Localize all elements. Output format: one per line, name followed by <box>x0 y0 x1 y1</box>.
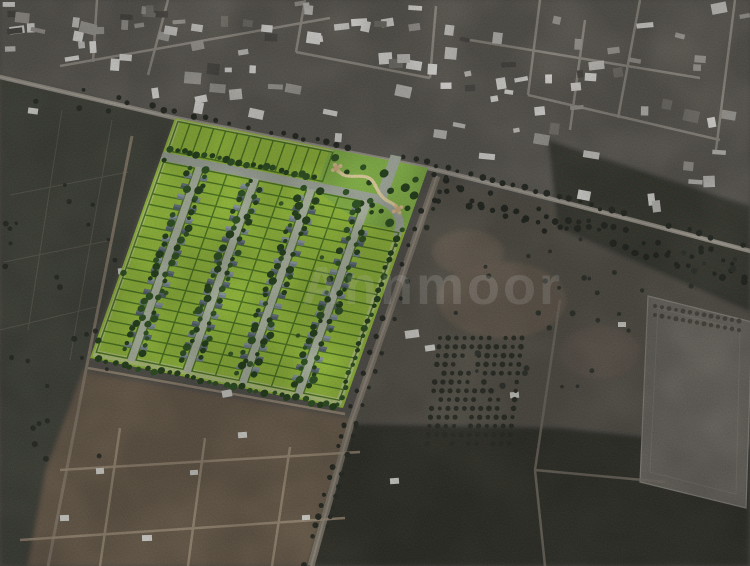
light-grain-overlay <box>0 0 750 566</box>
aerial-masterplan-screenshot: Annmoor <box>0 0 750 566</box>
satellite-map-canvas: Annmoor <box>0 0 750 566</box>
